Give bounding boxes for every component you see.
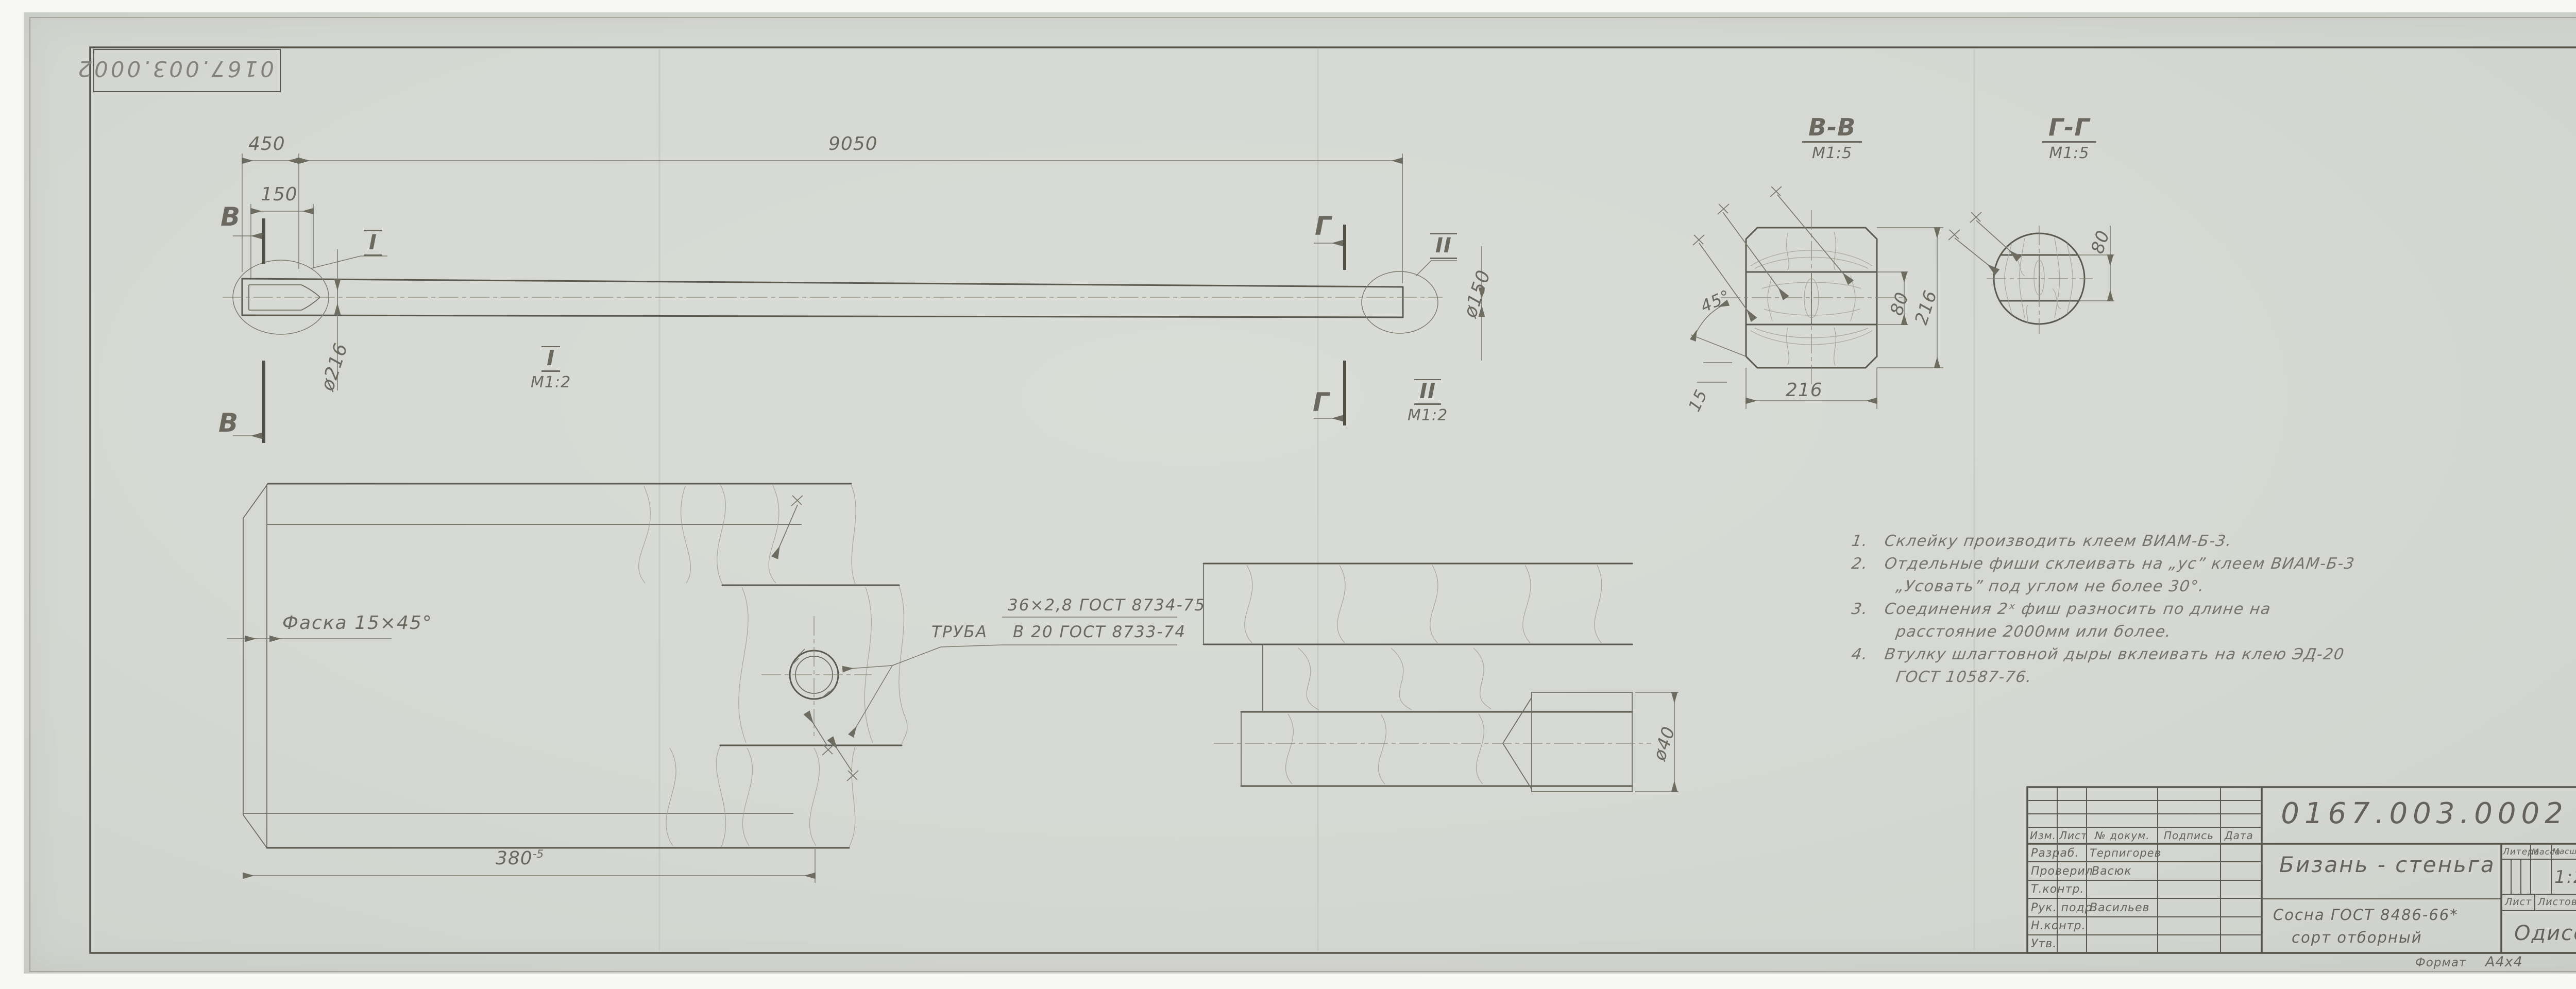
row-utv-label: Утв. [2031,939,2057,950]
note-1-num: 1. [1851,534,1869,549]
detail-ii-label: II М1:2 [1408,379,1448,423]
col-docnum: № докум. [2095,830,2150,841]
row-rukpodr-label: Рук. подр. [2031,902,2097,914]
section-mark-b-top: В [221,204,241,230]
bb-dim-width-216: 216 [1786,381,1823,400]
tube-label: ТРУБА [931,624,988,640]
col-izm: Изм. [2030,830,2056,841]
dim-150: 150 [261,185,298,204]
row-proveril-name: Васюк [2092,866,2131,877]
scale-label: Масштаб [2552,848,2576,856]
col-podpis: Подпись [2164,830,2214,841]
archive-stamp-number: 0167.003.0002 [101,58,274,79]
tube-spec-top: 36×2,8 ГОСТ 8734-75 [1008,598,1206,613]
sheets-label: Листов [2538,897,2576,907]
company-name: Одиссей [2514,923,2576,944]
dim-380-value: 380 [496,848,533,869]
blueprint-sheet: .pm{stroke:#5b594f;stroke-width:3;fill:n… [0,0,2576,989]
dim-9050: 9050 [828,135,878,154]
part-name: Бизань - стеньга [2279,854,2496,876]
note-2-text: Отдельные фиши склеивать на „ус” клеем В… [1884,556,2356,572]
chamfer-note: Фаска 15×45° [282,614,433,633]
material-line-2: сорт отборный [2292,930,2422,945]
section-gg-label: Г-Г М1:5 [2042,115,2096,161]
section-bb-label: В-В М1:5 [1802,115,1862,161]
note-3-num: 3. [1851,602,1869,617]
note-4-num: 4. [1851,647,1869,662]
col-data: Дата [2225,830,2253,841]
detail-i-scale: М1:2 [531,375,571,390]
section-mark-b-bottom: В [218,410,239,436]
format-value: А4х4 [2485,955,2523,969]
note-2-cont: „Усовать” под углом не более 30°. [1895,579,2206,594]
dim-380-tolerance: -5 [533,848,544,861]
note-4-text: Втулку шлагтовной дыры вклеивать на клею… [1884,647,2346,662]
section-bb-name: В-В [1802,115,1862,143]
detail-ii-name: II [1414,379,1441,405]
section-mark-g-top: Г [1315,213,1332,239]
row-razrab-name: Терпигорев [2090,848,2161,859]
row-rukpodr-name: Васильев [2090,902,2150,914]
section-gg-scale: М1:5 [2049,146,2089,161]
sheet-label: Лист [2505,897,2532,907]
row-razrab-label: Разраб. [2031,848,2079,859]
material-line-1: Сосна ГОСТ 8486-66* [2273,908,2459,923]
detail-i-name: I [541,346,560,372]
note-4-cont: ГОСТ 10587-76. [1895,670,2033,685]
detail-ii-scale: М1:2 [1408,408,1448,423]
note-1-text: Склейку производить клеем ВИАМ-Б-3. [1884,534,2233,549]
detail-i-label: I М1:2 [531,346,571,390]
tube-spec-bottom: В 20 ГОСТ 8733-74 [1013,624,1186,640]
scale-value: 1:25 [2554,868,2576,886]
section-bb-scale: М1:5 [1812,146,1852,161]
format-label: Формат [2415,957,2466,969]
detail-callout-ii: II [1430,233,1457,259]
note-2-num: 2. [1851,556,1869,572]
dim-450: 450 [248,135,285,154]
note-3-text: Соединения 2ˣ фиш разносить по длине на [1884,602,2272,617]
row-nkontr-label: Н.контр. [2031,920,2086,932]
col-list: Лист [2059,830,2088,841]
row-proveril-label: Проверил [2031,866,2093,877]
doc-number: 0167.003.0002 [2262,799,2576,828]
note-3-cont: расстояние 2000мм или более. [1895,624,2173,640]
section-gg-name: Г-Г [2042,115,2096,143]
detail-callout-i: I [364,230,382,256]
dim-380: 380-5 [496,849,544,868]
section-mark-g-bottom: Г [1313,389,1330,415]
row-tkontr-label: Т.контр. [2031,884,2084,895]
